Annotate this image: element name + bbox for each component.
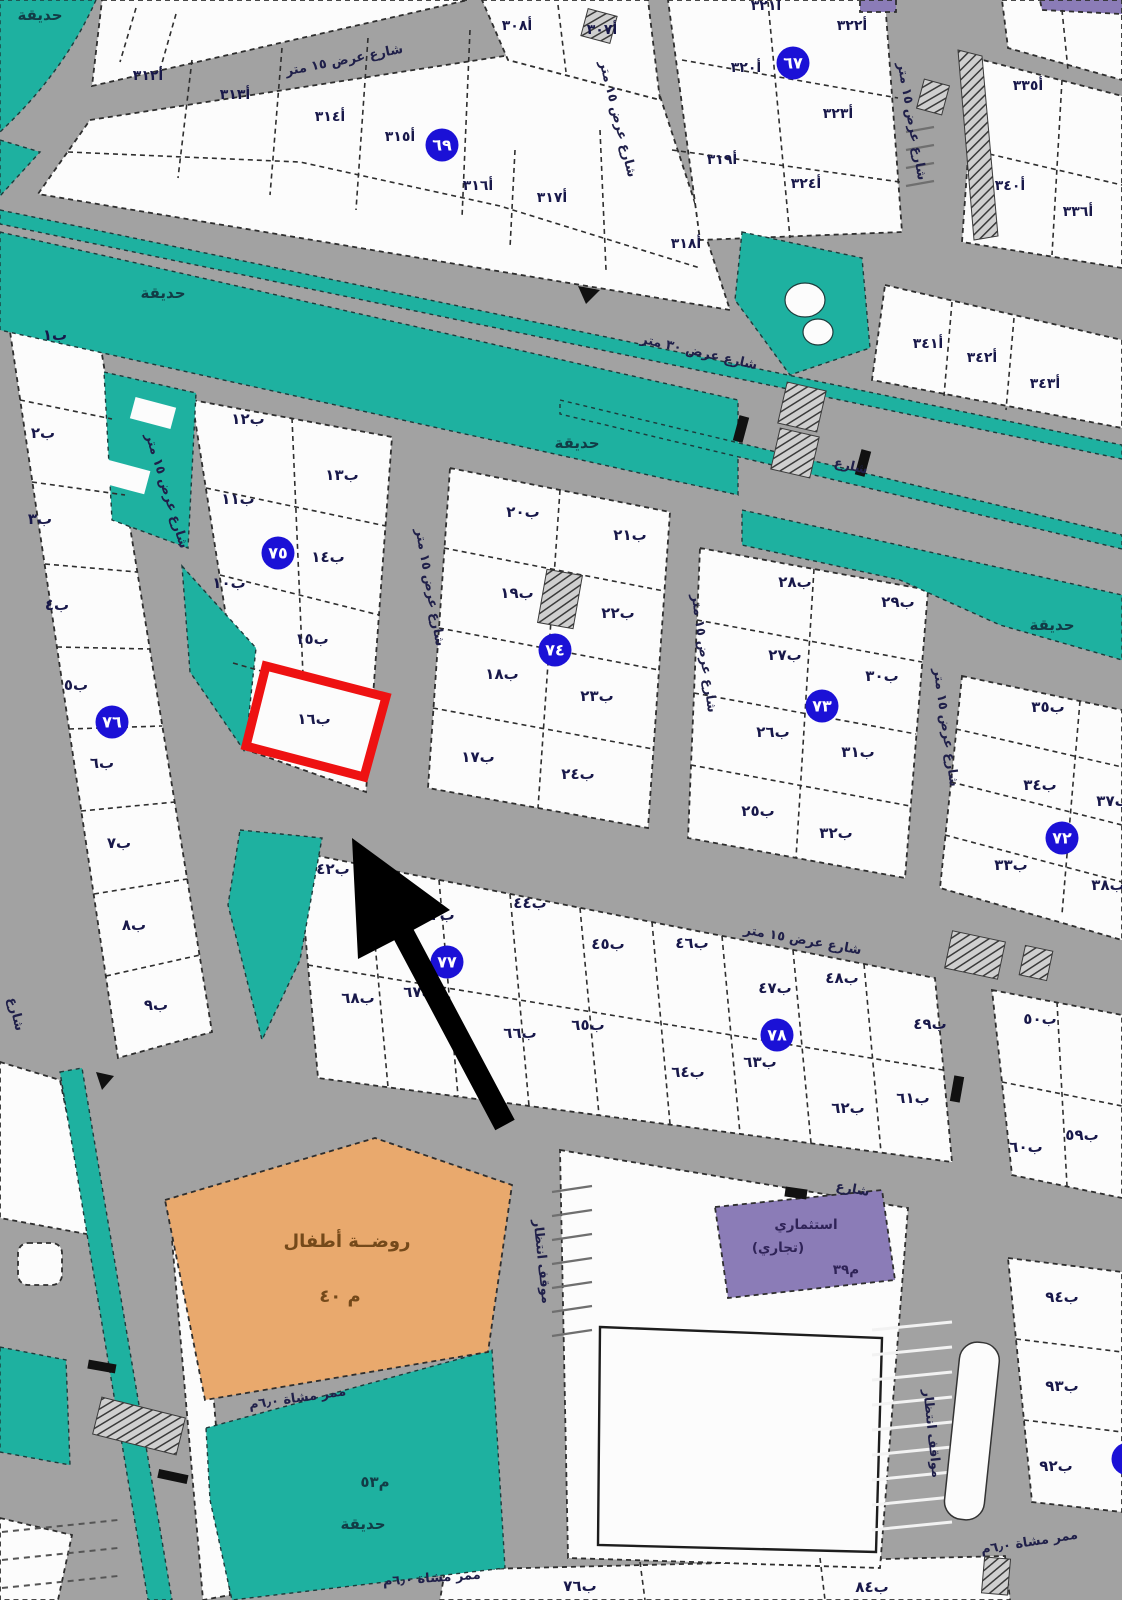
plot-label-a-15: أ٣٣٥ <box>1013 76 1043 94</box>
plot-label-b-8: ب٩ <box>144 996 168 1014</box>
plot-label-b-33: ب٣٤ <box>1023 776 1056 794</box>
plot-label-b-21: ب٢٣ <box>580 687 613 705</box>
plot-label-b-27: ب٣٠ <box>865 667 898 685</box>
plot-label-b-22: ب١٧ <box>461 748 494 766</box>
plot-label-a-7: أ٣٠٨ <box>502 16 532 34</box>
plot-label-b-55: ب٥٩ <box>1065 1126 1098 1144</box>
block-59-60 <box>992 990 1122 1198</box>
block-badge-٧٢: ٧٢ <box>1046 822 1079 855</box>
plot-label-b-60: ب٨٤ <box>855 1578 888 1596</box>
plot-label-b-36: ب٣٨ <box>1091 876 1122 894</box>
plot-label-a-8: أ٣٠٧ <box>587 20 617 38</box>
plot-label-b-30: ب٢٥ <box>741 802 774 820</box>
block-badge-٧٦: ٧٦ <box>96 706 129 739</box>
plot-label-b-49: ب٦٥ <box>571 1016 604 1034</box>
block-67 <box>668 0 902 240</box>
plot-label-b-23: ب٢٤ <box>561 765 594 783</box>
park-left-square <box>0 1347 70 1465</box>
plot-label-b-35: ب٣٣ <box>994 856 1027 874</box>
plot-label-b-34: ب٣٧ <box>1096 792 1122 810</box>
park-label-3: حديقة <box>1030 616 1075 634</box>
plot-label-b-57: ب٩٣ <box>1045 1377 1078 1395</box>
block-badge-٧٤: ٧٤ <box>539 634 572 667</box>
plot-label-b-41: ب٤٦ <box>675 934 708 952</box>
school-building <box>598 1327 882 1552</box>
block-badge-number: ٧٨ <box>767 1026 787 1045</box>
plot-label-b-39: ب٤٤ <box>513 894 546 912</box>
plot-label-a-3: أ٣١٥ <box>385 127 415 145</box>
plot-label-b-2: ب٣ <box>28 510 52 528</box>
park-label-0: حديقة <box>18 6 63 24</box>
plot-label-b-3: ب٤ <box>45 596 69 614</box>
block-badge-٧٥: ٧٥ <box>262 537 295 570</box>
plot-label-b-18: ب١٩ <box>500 584 533 602</box>
plot-label-b-46: ب٦٨ <box>341 989 374 1007</box>
plot-label-b-15: ب١٦ <box>297 710 330 728</box>
plot-label-b-51: ب٦٣ <box>743 1053 776 1071</box>
plot-label-a-19: أ٣٤٢ <box>967 348 997 366</box>
plot-label-b-48: ب٦٦ <box>503 1024 536 1042</box>
block-badge-number: ٧٧ <box>437 953 457 972</box>
block-badge-number: ٧٤ <box>545 641 565 660</box>
plot-label-b-17: ب٢١ <box>613 526 646 544</box>
area-label-2: استثماري <box>774 1217 837 1233</box>
plot-label-b-50: ب٦٤ <box>671 1063 704 1081</box>
plot-label-a-20: أ٣٤٣ <box>1030 374 1060 392</box>
plot-label-b-28: ب٢٦ <box>756 723 789 741</box>
area-label-0: روضــة أطفال <box>284 1229 411 1252</box>
block-badge-number: ٧٥ <box>268 544 288 563</box>
block-badge-٧٣: ٧٣ <box>806 690 839 723</box>
park-label-4: م٥٣ <box>360 1473 389 1491</box>
plot-label-b-5: ب٦ <box>90 754 114 772</box>
area-label-4: م٣٩ <box>833 1262 859 1278</box>
plot-label-b-1: ب٢ <box>31 424 55 442</box>
plot-label-a-16: أ٣٤٠ <box>995 176 1025 194</box>
plot-label-b-40: ب٤٥ <box>591 935 624 953</box>
plot-label-b-11: ب١١ <box>221 490 254 508</box>
plot-label-b-24: ب٢٨ <box>778 573 811 591</box>
plot-label-a-18: أ٣٤١ <box>913 334 943 352</box>
plot-label-a-14: أ٣٢٤ <box>791 174 821 192</box>
park-label-1: حديقة <box>141 284 186 302</box>
plot-label-a-12: أ٣٢٣ <box>823 104 853 122</box>
block-badge-٧٨: ٧٨ <box>761 1019 794 1052</box>
commercial-area <box>715 1190 895 1298</box>
plot-label-b-59: ب٧٦ <box>563 1577 596 1595</box>
block-badge-number: ٧٦ <box>102 713 122 732</box>
area-label-1: م ٤٠ <box>319 1286 360 1307</box>
plot-label-a-4: أ٣١٦ <box>463 176 493 194</box>
plot-label-b-44: ب٤٩ <box>913 1015 946 1033</box>
plot-label-a-2: أ٣١٤ <box>315 107 345 125</box>
plot-label-a-10: أ٣٢٢ <box>837 16 867 34</box>
plot-label-a-6: أ٣١٨ <box>671 234 701 252</box>
plot-label-b-52: ب٦٢ <box>831 1099 864 1117</box>
plot-label-a-1: أ٣١٣ <box>220 85 250 103</box>
plot-label-b-31: ب٣٢ <box>819 824 852 842</box>
plot-label-a-9: أ٣٢١ <box>751 0 781 14</box>
plot-label-b-26: ب٢٧ <box>768 646 801 664</box>
subdivision-map: أ٣١٢أ٣١٣أ٣١٤أ٣١٥أ٣١٦أ٣١٧أ٣١٨أ٣٠٨أ٣٠٧أ٣٢١… <box>0 0 1122 1600</box>
block-badge-number: ٧٣ <box>812 697 832 716</box>
plot-label-b-29: ب٣١ <box>841 743 874 761</box>
park-label-2: حديقة <box>555 434 600 452</box>
plot-label-b-56: ب٩٤ <box>1045 1288 1078 1306</box>
plot-label-b-58: ب٩٢ <box>1039 1457 1072 1475</box>
area-label-3: (تجاري) <box>752 1240 804 1256</box>
plot-label-b-0: ب١ <box>43 326 67 344</box>
plot-label-b-9: ب١٢ <box>231 410 264 428</box>
plot-label-a-5: أ٣١٧ <box>537 188 567 206</box>
plot-label-b-14: ب١٥ <box>295 630 328 648</box>
plot-label-b-6: ب٧ <box>107 834 131 852</box>
block-badge-number: ٦٧ <box>783 54 803 73</box>
plot-label-b-20: ب١٨ <box>485 665 518 683</box>
plot-label-b-4: ب٥ <box>64 676 88 694</box>
pocket-small <box>18 1243 62 1285</box>
plot-label-b-13: ب١٠ <box>212 574 245 592</box>
block-badge-٦٩: ٦٩ <box>426 129 459 162</box>
plot-label-b-7: ب٨ <box>122 916 146 934</box>
block-badge-number: ٦٩ <box>432 136 452 155</box>
plot-label-b-10: ب١٣ <box>325 466 358 484</box>
purple-sliver-top <box>860 0 896 12</box>
plot-label-a-13: أ٣١٩ <box>707 150 737 168</box>
plot-label-b-16: ب٢٠ <box>506 503 539 521</box>
plot-label-b-19: ب٢٢ <box>601 604 634 622</box>
plot-label-b-45: ب٥٠ <box>1023 1010 1056 1028</box>
plot-label-b-12: ب١٤ <box>311 548 344 566</box>
plot-label-b-42: ب٤٧ <box>758 979 791 997</box>
plot-label-b-32: ب٣٥ <box>1031 698 1064 716</box>
block-badge-number: ٧٢ <box>1052 829 1072 848</box>
park-label-5: حديقة <box>341 1515 386 1533</box>
plot-label-b-53: ب٦١ <box>896 1089 929 1107</box>
plot-label-a-0: أ٣١٢ <box>133 66 163 84</box>
plot-label-b-43: ب٤٨ <box>825 969 858 987</box>
block-badge-٦٧: ٦٧ <box>777 47 810 80</box>
plot-label-b-37: ب٤٢ <box>316 860 349 878</box>
plot-label-b-54: ب٦٠ <box>1009 1138 1042 1156</box>
plot-label-b-25: ب٢٩ <box>881 593 914 611</box>
plot-label-a-11: أ٣٢٠ <box>731 58 761 76</box>
plot-label-a-17: أ٣٣٦ <box>1063 202 1093 220</box>
